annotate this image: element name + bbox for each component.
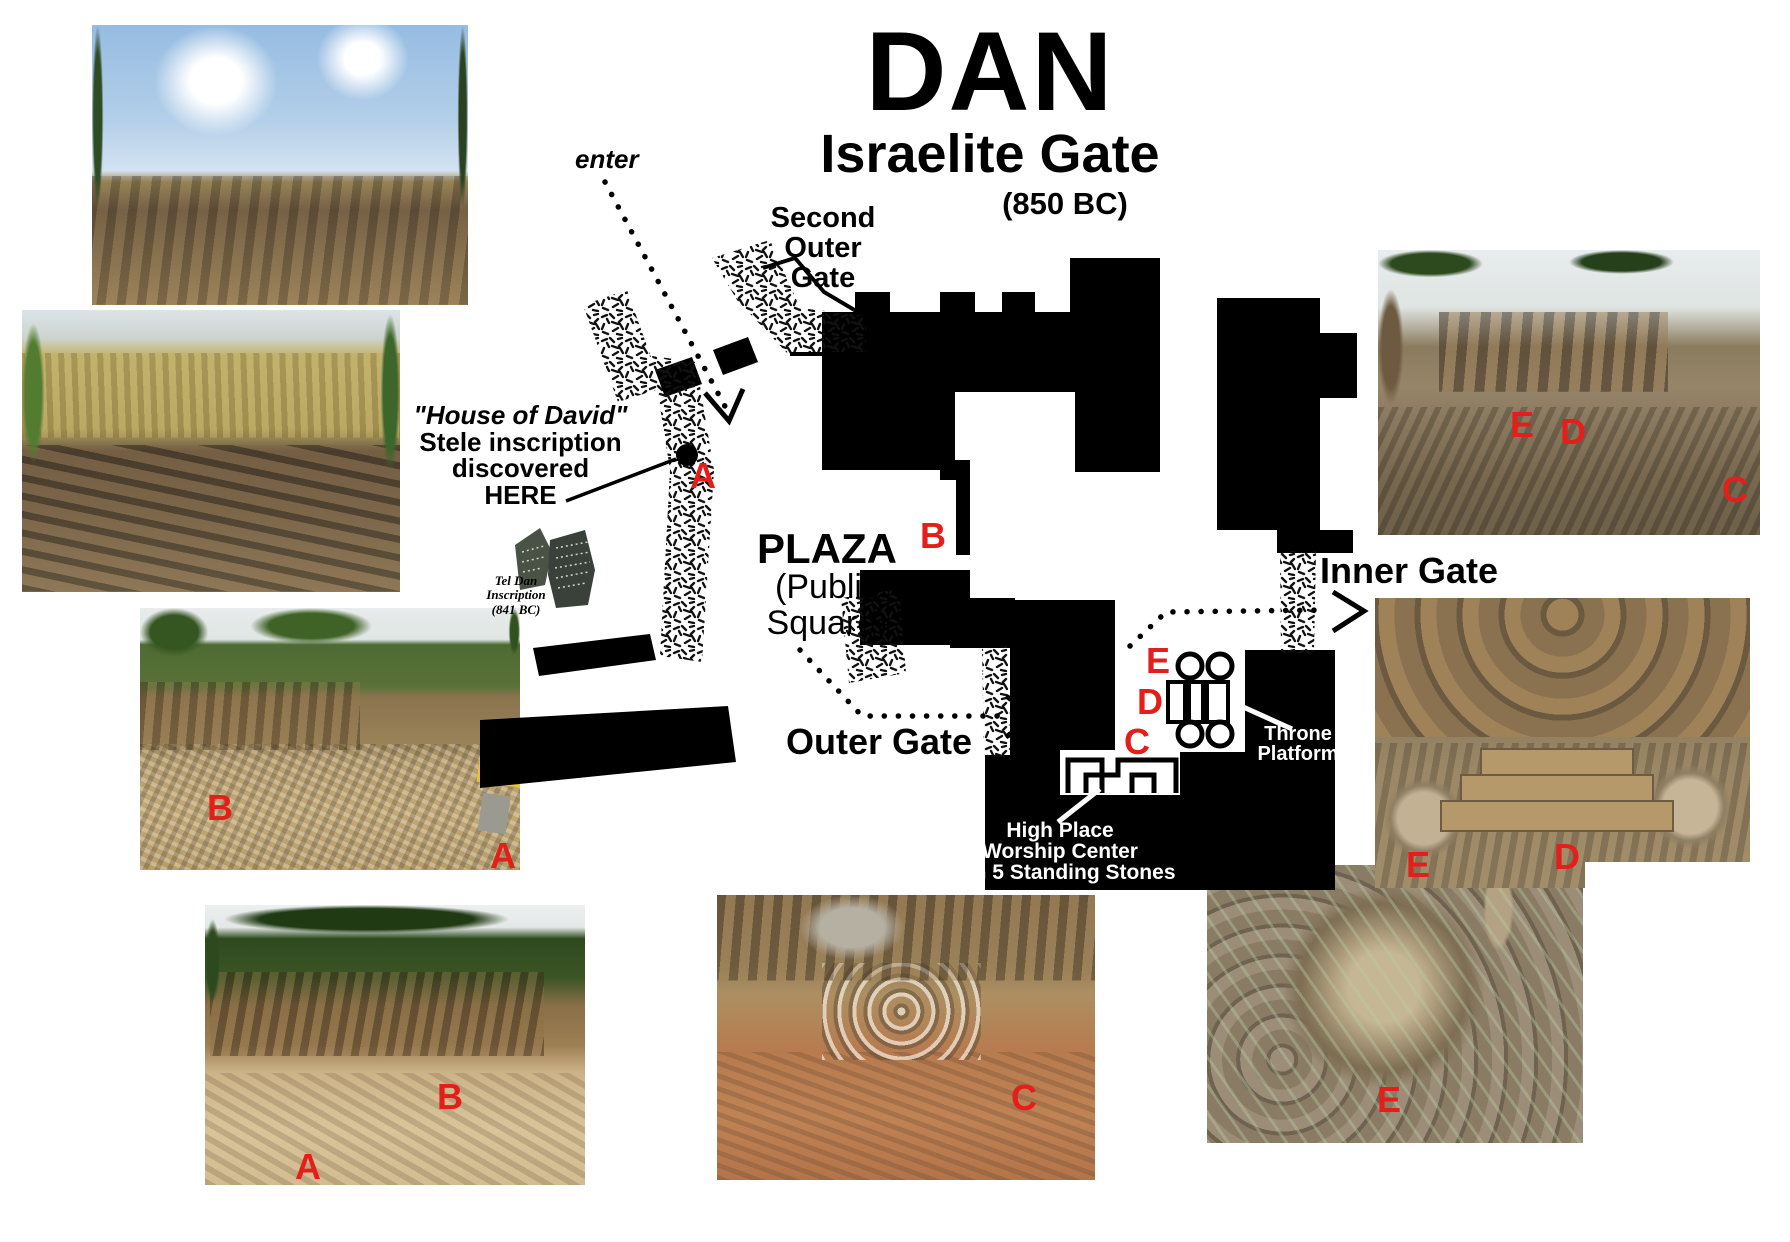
high-place-line3: with 5 Standing Stones bbox=[940, 862, 1180, 883]
plaza-line2: (Public bbox=[752, 570, 902, 606]
photo-throne-platform-steps: E D bbox=[1375, 598, 1750, 888]
outer-gate-label: Outer Gate bbox=[786, 723, 972, 760]
plan-stippled-walls bbox=[583, 240, 1316, 757]
marker-d-photo-road: D bbox=[1560, 414, 1586, 450]
column-base-icon bbox=[1208, 654, 1232, 678]
marker-a-photo-wall: A bbox=[295, 1149, 321, 1185]
high-place-pointer-line bbox=[1058, 789, 1100, 822]
photo-inner-gate-road: E D C bbox=[1378, 250, 1760, 535]
photo-high-place-worship-center: C bbox=[717, 895, 1095, 1180]
page-subtitle: Israelite Gate bbox=[790, 126, 1190, 182]
second-outer-gate-line2: Outer bbox=[738, 233, 908, 263]
enter-path bbox=[605, 182, 728, 412]
marker-c-photo-road: C bbox=[1722, 472, 1748, 508]
stele-note-line2: Stele inscription bbox=[398, 429, 643, 456]
second-outer-gate-label: Second Outer Gate bbox=[738, 203, 908, 293]
platform-step-bottom bbox=[1440, 800, 1674, 832]
photo-column-base-closeup: E bbox=[1207, 865, 1583, 1143]
stele-note: "House of David" Stele inscription disco… bbox=[398, 402, 643, 508]
site-sign bbox=[476, 728, 520, 788]
page-date: (850 BC) bbox=[950, 188, 1180, 220]
stele-note-line3: discovered bbox=[398, 455, 643, 482]
outer-gate-path bbox=[800, 650, 1000, 716]
tel-dan-gate-infographic: B A B A C E E D C E D bbox=[0, 0, 1790, 1242]
marker-b-photo-wall: B bbox=[437, 1079, 463, 1115]
photo-corner-notch bbox=[1585, 862, 1750, 888]
throne-line2: Platform bbox=[1243, 744, 1353, 764]
outer-gate-pier-right bbox=[982, 646, 1010, 757]
marker-e-photo-steps: E bbox=[1406, 847, 1430, 883]
caption-line3: (841 BC) bbox=[470, 603, 562, 617]
column-base-icon bbox=[1178, 722, 1202, 746]
enter-arrowhead bbox=[705, 389, 743, 421]
marker-a-photo-plaza: A bbox=[490, 838, 516, 870]
marker-e-photo-base: E bbox=[1377, 1082, 1401, 1118]
marker-c-plan: C bbox=[1124, 724, 1150, 760]
throne-line1: Throne bbox=[1243, 724, 1353, 744]
high-place-label: High Place Worship Center with 5 Standin… bbox=[940, 820, 1180, 883]
stele-note-line4: HERE bbox=[398, 482, 643, 509]
tel-dan-inscription-caption: Tel Dan Inscription (841 BC) bbox=[470, 574, 562, 617]
marker-b-plan: B bbox=[920, 518, 946, 554]
wall-entry-left bbox=[583, 290, 662, 402]
second-outer-gate-line3: Gate bbox=[738, 263, 908, 293]
photo-outer-wall-street: B A bbox=[205, 905, 585, 1185]
page-title: DAN bbox=[800, 14, 1180, 130]
column-base-icon bbox=[1178, 654, 1202, 678]
marker-d-plan: D bbox=[1137, 684, 1163, 720]
inner-gate-arrowhead bbox=[1333, 592, 1364, 631]
enter-label: enter bbox=[575, 146, 639, 173]
high-place-line1: High Place bbox=[940, 820, 1180, 841]
second-outer-gate-line1: Second bbox=[738, 203, 908, 233]
marker-e-plan: E bbox=[1146, 643, 1170, 679]
plan-black-walls bbox=[480, 258, 1357, 890]
stele-note-line1: "House of David" bbox=[398, 402, 643, 429]
photo-plaza-pavement: B A bbox=[140, 608, 520, 870]
throne-platform-label: Throne Platform bbox=[1243, 724, 1353, 764]
throne-platform-glyph bbox=[1168, 654, 1232, 746]
wall-stele-street bbox=[652, 356, 714, 662]
photo-stone-walls-grass bbox=[22, 310, 400, 592]
marker-b-photo-plaza: B bbox=[207, 790, 233, 826]
high-place-glyph bbox=[1060, 750, 1180, 795]
caption-line2: Inscription bbox=[470, 588, 562, 602]
marker-c-photo-high-place: C bbox=[1011, 1080, 1037, 1116]
inner-gate-label: Inner Gate bbox=[1320, 552, 1498, 589]
marker-e-photo-road: E bbox=[1510, 407, 1534, 443]
marker-a-plan: A bbox=[690, 458, 716, 494]
outer-gate-arrowhead bbox=[1006, 696, 1035, 737]
photo-excavated-ruins-sky bbox=[92, 25, 468, 305]
high-place-line2: Worship Center bbox=[940, 841, 1180, 862]
marker-d-photo-steps: D bbox=[1554, 839, 1580, 875]
inner-gate-pier bbox=[1280, 551, 1316, 653]
caption-line1: Tel Dan bbox=[470, 574, 562, 588]
dotted-paths bbox=[605, 182, 1326, 716]
plaza-line3: Square) bbox=[752, 606, 902, 642]
plaza-line1: PLAZA bbox=[752, 528, 902, 570]
plaza-label: PLAZA (Public Square) bbox=[752, 528, 902, 641]
column-base-icon bbox=[1208, 722, 1232, 746]
